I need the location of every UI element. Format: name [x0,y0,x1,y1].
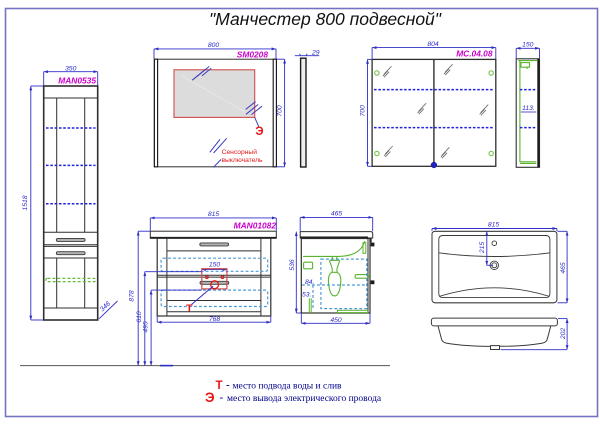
svg-text:465: 465 [560,262,567,274]
svg-text:536: 536 [289,259,296,271]
svg-text:Э: Э [205,390,215,405]
svg-text:Т: Т [216,380,223,392]
svg-text:место подвода воды и слив: место подвода воды и слив [233,382,343,392]
svg-text:800: 800 [208,42,220,49]
svg-text:878: 878 [128,290,135,302]
svg-text:113.: 113. [522,105,535,112]
svg-text:MC.04.08: MC.04.08 [456,49,493,59]
svg-text:SM0208: SM0208 [237,49,269,59]
svg-text:700: 700 [277,105,284,117]
svg-text:700: 700 [359,105,366,117]
svg-text:MAN0535: MAN0535 [58,75,96,85]
svg-text:-: - [226,379,230,391]
svg-text:465: 465 [331,211,343,218]
svg-text:346: 346 [99,300,112,313]
svg-text:450: 450 [330,317,342,324]
svg-text:150: 150 [522,42,534,49]
svg-text:выключатель: выключатель [221,157,263,164]
svg-text:53.: 53. [302,292,312,299]
svg-text:-: - [220,392,224,404]
svg-text:610: 610 [136,311,143,323]
svg-text:350: 350 [65,65,77,72]
svg-text:"Манчестер 800 подвесной": "Манчестер 800 подвесной" [209,9,442,29]
svg-text:150: 150 [209,262,221,269]
svg-text:202: 202 [560,328,567,341]
svg-text:815: 815 [488,222,500,229]
svg-text:место вывода электрического пр: место вывода электрического провода [227,394,382,404]
svg-text:84.: 84. [305,279,315,286]
svg-text:815: 815 [208,211,220,218]
svg-text:Сенсорный: Сенсорный [222,148,258,156]
svg-text:768: 768 [209,316,221,323]
svg-text:MAN01082: MAN01082 [234,221,277,231]
svg-text:215: 215 [479,242,486,255]
svg-text:29: 29 [311,49,320,56]
svg-text:1518: 1518 [22,195,29,210]
svg-text:495: 495 [143,321,150,333]
svg-text:804: 804 [427,41,439,48]
svg-text:Т: Т [186,303,193,315]
svg-text:Э: Э [255,126,263,138]
